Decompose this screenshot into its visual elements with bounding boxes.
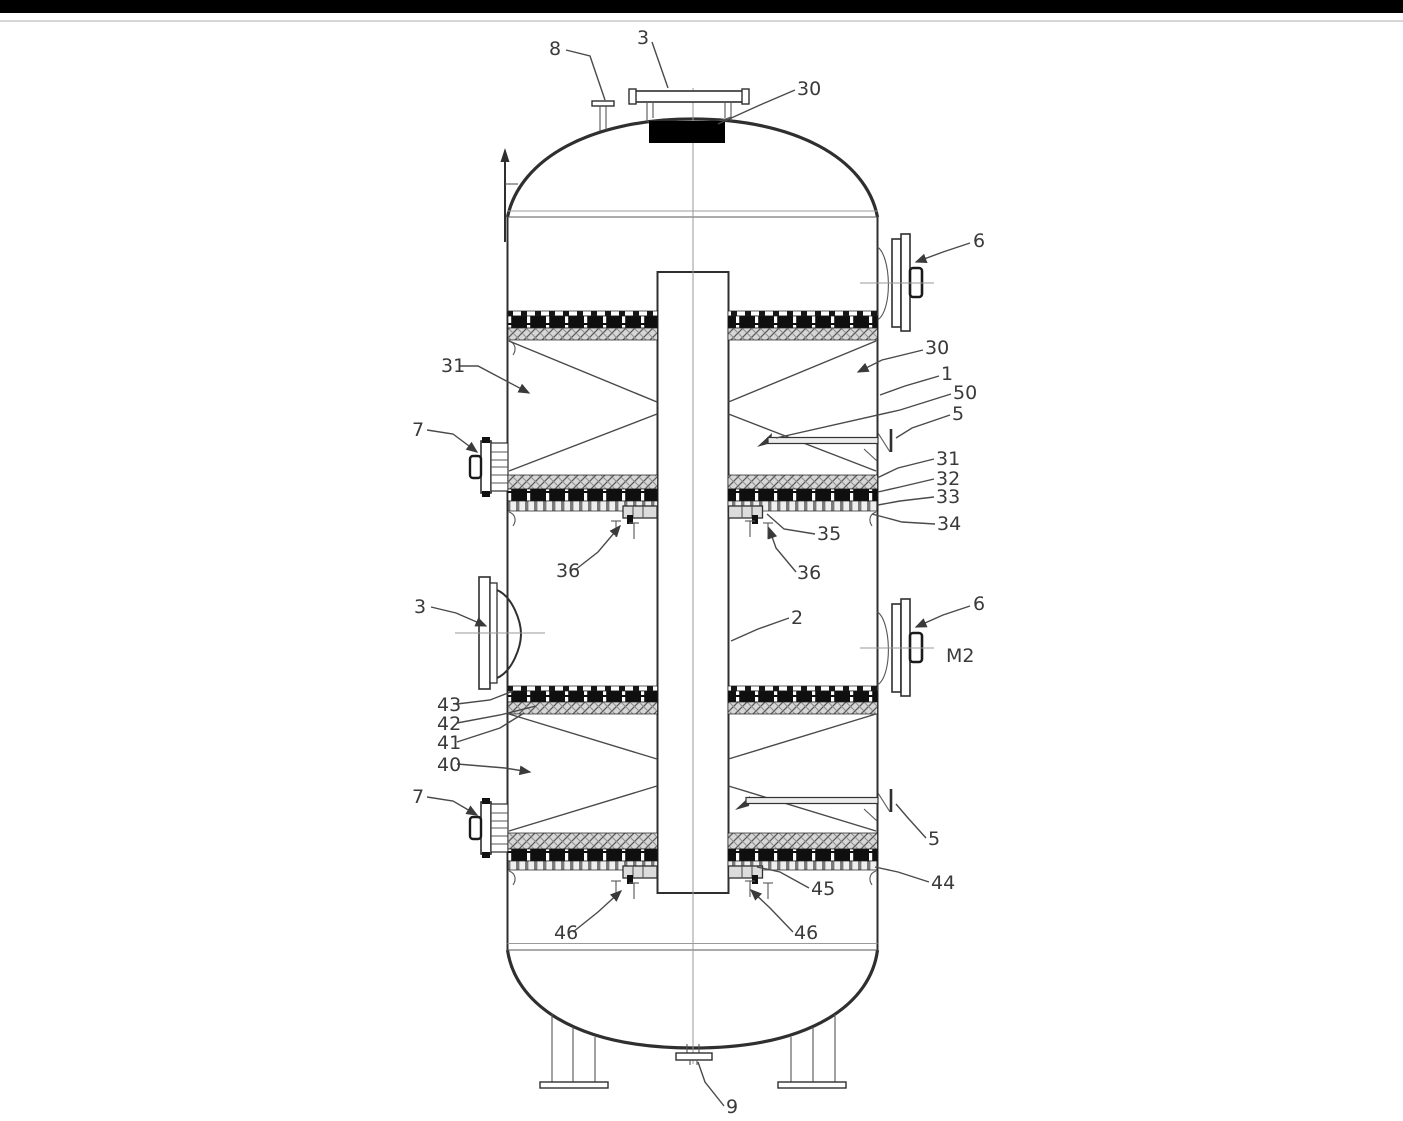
- callout-m2: M2: [946, 645, 974, 667]
- sparger-upper: [757, 429, 891, 461]
- callout-31-upper: 31: [441, 355, 465, 377]
- top-packing-block: [649, 121, 725, 143]
- support-leg-right: [778, 1014, 846, 1088]
- leader-46-left: [573, 891, 621, 932]
- leader-31-upper: [460, 366, 529, 393]
- callout-41: 41: [437, 732, 461, 754]
- callout-35: 35: [817, 523, 841, 545]
- leader-46-right: [751, 890, 793, 932]
- leader-8: [566, 50, 605, 100]
- manway-mid: [455, 577, 545, 689]
- callout-44: 44: [931, 872, 955, 894]
- callout-50: 50: [953, 382, 977, 404]
- leader-30-upper: [858, 350, 923, 372]
- leader-34: [872, 514, 935, 524]
- leader-7-lower: [427, 797, 477, 815]
- callout-2: 2: [791, 607, 803, 629]
- callout-7-lower: 7: [412, 786, 424, 808]
- callout-7-upper: 7: [412, 419, 424, 441]
- leader-50: [776, 394, 951, 438]
- nozzle-7-lower: [470, 798, 508, 858]
- leader-44: [875, 867, 929, 882]
- nozzle-7-upper: [470, 437, 508, 497]
- leader-35: [767, 514, 815, 534]
- leader-6-upper: [916, 243, 970, 262]
- leader-36-left: [575, 526, 620, 570]
- leader-40: [457, 764, 530, 772]
- leader-33: [878, 497, 934, 505]
- figure-page: 8 3 30 6 31 30 1 50 5 7 31 32 33 34 35 3…: [0, 0, 1403, 1121]
- callout-6-lower: 6: [973, 593, 985, 615]
- leader-42: [457, 706, 536, 723]
- callout-30-upper: 30: [925, 337, 949, 359]
- leader-3-mid: [431, 607, 486, 626]
- callout-3-mid: 3: [414, 596, 426, 618]
- vessel-drawing: 8 3 30 6 31 30 1 50 5 7 31 32 33 34 35 3…: [0, 0, 1403, 1121]
- callout-33: 33: [936, 486, 960, 508]
- callout-46-left: 46: [554, 922, 578, 944]
- leader-31: [877, 459, 934, 478]
- leader-36-right: [769, 528, 796, 572]
- vent-nozzle: [592, 101, 614, 131]
- callout-3-top: 3: [637, 27, 649, 49]
- leader-3-top: [652, 42, 668, 88]
- leader-5-lower: [896, 804, 926, 838]
- callout-45: 45: [811, 878, 835, 900]
- leader-32: [878, 479, 934, 492]
- callout-34: 34: [937, 513, 961, 535]
- callout-31: 31: [936, 448, 960, 470]
- top-manhole: [629, 89, 749, 143]
- callout-1: 1: [941, 363, 953, 385]
- leader-2: [731, 618, 789, 641]
- nozzle-6-lower: [860, 599, 934, 696]
- callout-6-upper: 6: [973, 230, 985, 252]
- callout-46-right: 46: [794, 922, 818, 944]
- callout-30-top: 30: [797, 78, 821, 100]
- leader-9: [698, 1062, 724, 1106]
- callout-5-upper: 5: [952, 403, 964, 425]
- leader-7-upper: [427, 430, 477, 452]
- callout-8: 8: [549, 38, 561, 60]
- callout-9: 9: [726, 1096, 738, 1118]
- leader-6-lower: [916, 606, 970, 627]
- callout-40: 40: [437, 754, 461, 776]
- callout-5-lower: 5: [928, 828, 940, 850]
- callout-36-right: 36: [797, 562, 821, 584]
- leader-1: [880, 376, 939, 395]
- sparger-lower: [735, 789, 891, 821]
- leader-5-upper: [896, 415, 950, 438]
- top-bar: [0, 0, 1403, 13]
- callout-36-left: 36: [556, 560, 580, 582]
- support-leg-left: [540, 1014, 608, 1088]
- leader-43: [457, 691, 513, 704]
